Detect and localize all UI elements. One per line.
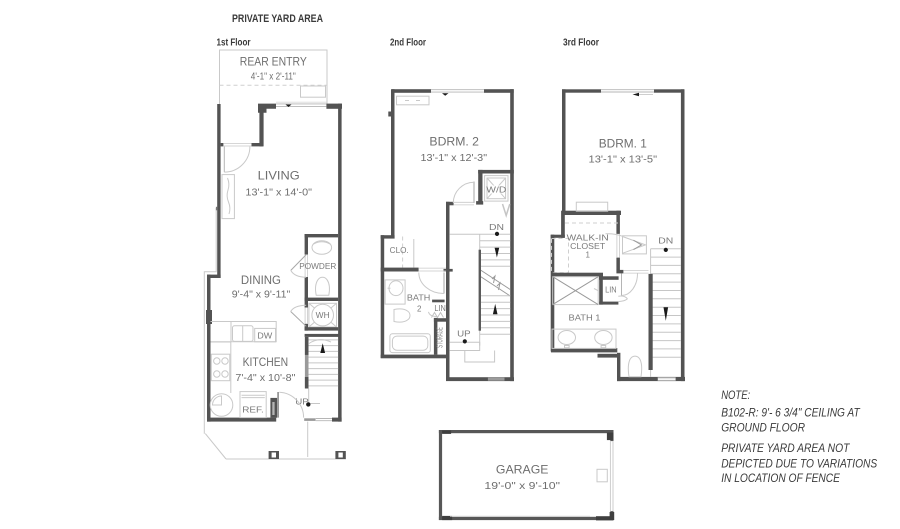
svg-text:LIN: LIN bbox=[605, 286, 617, 295]
svg-text:DN: DN bbox=[489, 223, 504, 232]
svg-text:DW: DW bbox=[257, 332, 273, 341]
svg-text:1st Floor: 1st Floor bbox=[217, 38, 251, 49]
svg-text:W/D: W/D bbox=[486, 186, 506, 195]
svg-text:DINING: DINING bbox=[241, 274, 281, 287]
svg-text:CLOSET: CLOSET bbox=[570, 242, 605, 251]
svg-text:B102-R: 9'- 6 3/4" CEILING AT: B102-R: 9'- 6 3/4" CEILING AT bbox=[721, 408, 860, 420]
svg-text:2nd Floor: 2nd Floor bbox=[390, 38, 426, 49]
svg-text:9'-4" x 9'-11": 9'-4" x 9'-11" bbox=[232, 290, 291, 301]
svg-text:13'-1" x 13'-5": 13'-1" x 13'-5" bbox=[589, 154, 658, 165]
svg-text:19'-0" x 9'-10": 19'-0" x 9'-10" bbox=[484, 481, 560, 492]
svg-text:DN: DN bbox=[658, 236, 673, 245]
svg-text:3rd Floor: 3rd Floor bbox=[563, 38, 599, 49]
svg-text:LIVING: LIVING bbox=[258, 170, 300, 183]
svg-text:7'-4" x 10'-8": 7'-4" x 10'-8" bbox=[235, 373, 295, 384]
svg-text:PRIVATE YARD AREA: PRIVATE YARD AREA bbox=[232, 13, 323, 25]
svg-text:NOTE:: NOTE: bbox=[721, 390, 750, 402]
svg-text:BATH: BATH bbox=[407, 294, 431, 303]
svg-text:STORAGE: STORAGE bbox=[436, 327, 445, 348]
svg-text:GROUND FLOOR: GROUND FLOOR bbox=[721, 422, 805, 434]
svg-text:KITCHEN: KITCHEN bbox=[243, 356, 289, 369]
svg-text:BATH 1: BATH 1 bbox=[569, 313, 602, 322]
svg-text:DEPICTED DUE TO VARIATIONS: DEPICTED DUE TO VARIATIONS bbox=[721, 458, 877, 470]
svg-text:CLO.: CLO. bbox=[390, 246, 409, 255]
svg-text:UP: UP bbox=[457, 329, 471, 338]
svg-text:2: 2 bbox=[417, 304, 422, 313]
svg-text:13'-1" x 12'-3": 13'-1" x 12'-3" bbox=[421, 153, 488, 164]
svg-text:POWDER: POWDER bbox=[299, 262, 336, 271]
svg-text:BDRM. 2: BDRM. 2 bbox=[429, 136, 479, 149]
svg-text:BDRM. 1: BDRM. 1 bbox=[599, 137, 647, 150]
svg-text:IN LOCATION OF FENCE: IN LOCATION OF FENCE bbox=[721, 473, 840, 485]
svg-text:4'-1" x 2'-11": 4'-1" x 2'-11" bbox=[251, 71, 296, 82]
svg-text:13'-1" x 14'-0": 13'-1" x 14'-0" bbox=[245, 187, 312, 198]
svg-text:REAR ENTRY: REAR ENTRY bbox=[240, 56, 307, 69]
svg-text:REF.: REF. bbox=[242, 405, 264, 414]
svg-text:PRIVATE YARD AREA NOT: PRIVATE YARD AREA NOT bbox=[721, 443, 850, 455]
svg-text:WH: WH bbox=[316, 311, 330, 320]
svg-text:LIN: LIN bbox=[434, 304, 446, 313]
svg-text:1: 1 bbox=[585, 251, 590, 260]
svg-text:GARAGE: GARAGE bbox=[496, 464, 549, 477]
